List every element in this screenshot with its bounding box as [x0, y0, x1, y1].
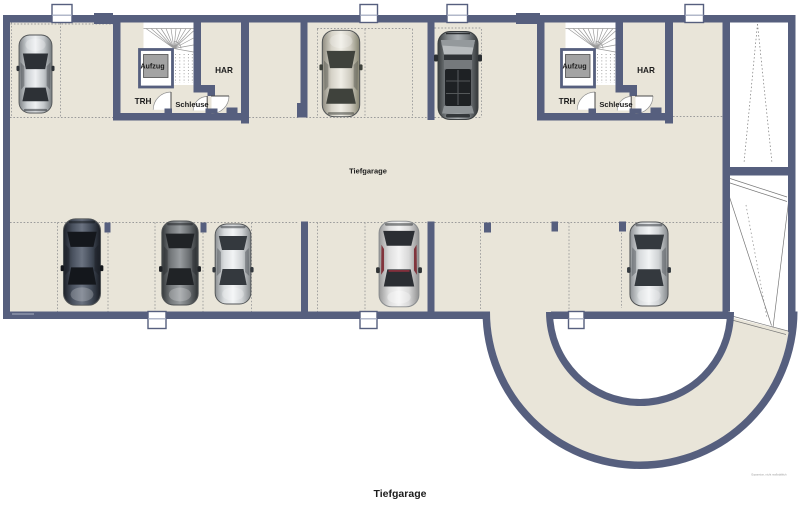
svg-text:Aufzug: Aufzug [562, 62, 586, 71]
svg-text:Schleuse: Schleuse [175, 100, 208, 109]
svg-text:Expansion, nicht maßstäblich: Expansion, nicht maßstäblich [752, 473, 787, 477]
svg-text:HAR: HAR [637, 66, 655, 75]
svg-text:TRH: TRH [559, 97, 576, 106]
svg-text:Tiefgarage: Tiefgarage [374, 488, 427, 500]
svg-text:HAR: HAR [215, 66, 233, 75]
svg-text:Tiefgarage: Tiefgarage [349, 167, 387, 176]
svg-text:TRH: TRH [135, 97, 152, 106]
svg-text:Aufzug: Aufzug [140, 62, 164, 71]
svg-text:Schleuse: Schleuse [599, 100, 632, 109]
